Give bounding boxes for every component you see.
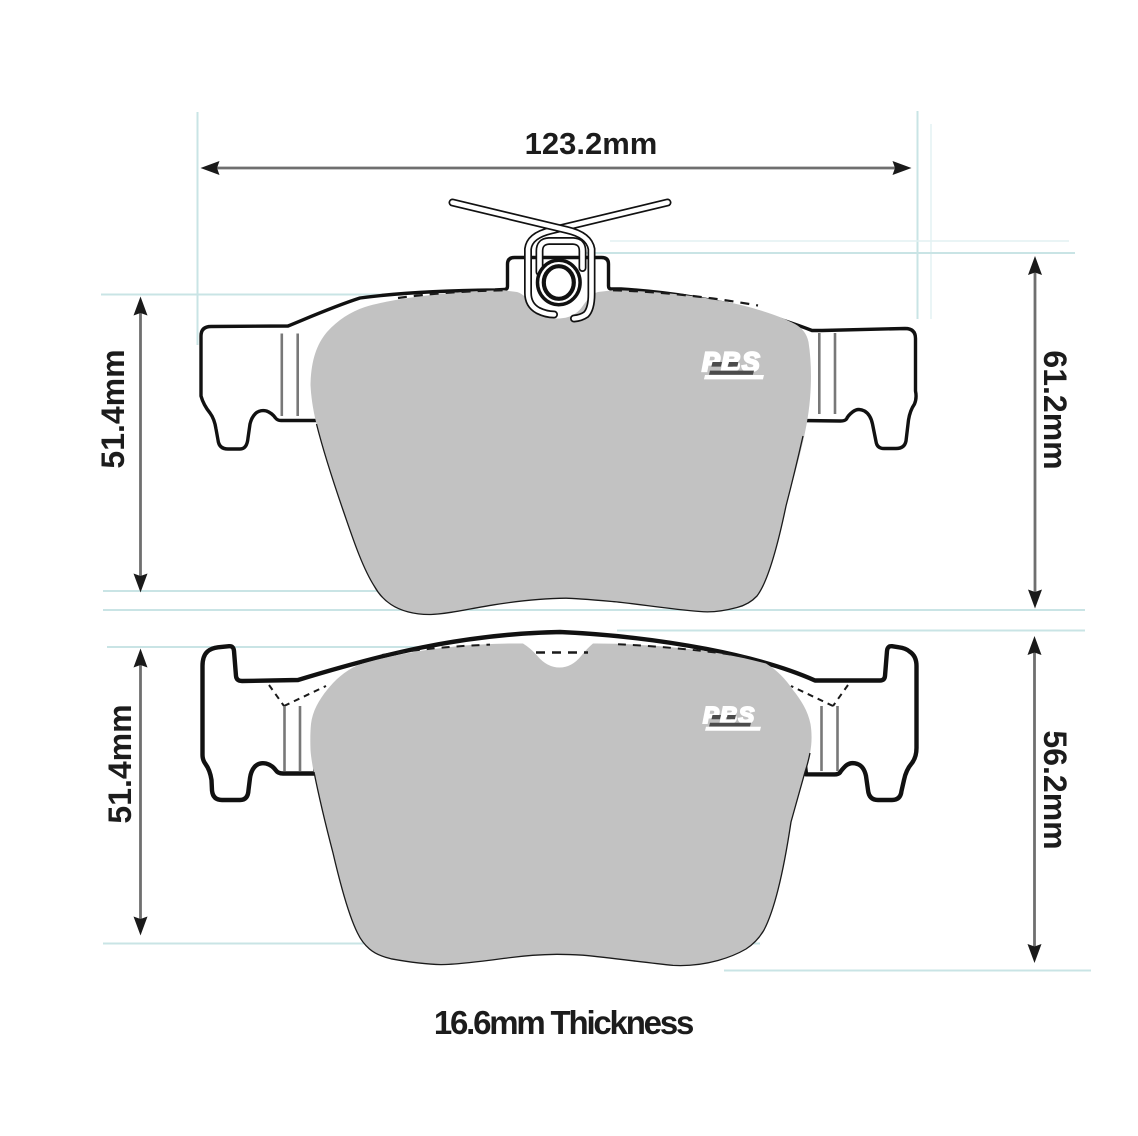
svg-text:61.2mm: 61.2mm	[1037, 350, 1073, 469]
svg-text:56.2mm: 56.2mm	[1037, 730, 1073, 849]
svg-text:123.2mm: 123.2mm	[525, 126, 658, 161]
svg-text:16.6mm Thickness: 16.6mm Thickness	[434, 1004, 693, 1041]
svg-text:51.4mm: 51.4mm	[95, 349, 131, 468]
svg-text:51.4mm: 51.4mm	[102, 704, 138, 823]
